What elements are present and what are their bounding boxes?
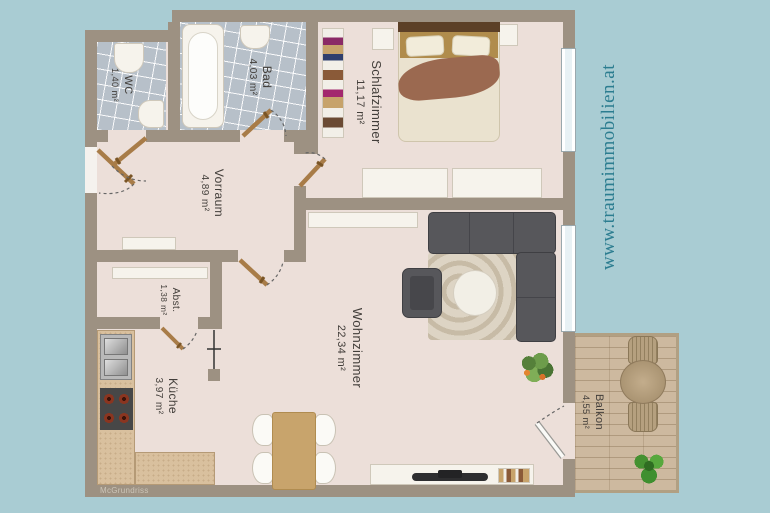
- room-area: 3,97 m²: [152, 378, 165, 415]
- entrance-door: [98, 150, 134, 194]
- room-name: WC: [121, 75, 135, 94]
- room-area: 4,55 m²: [580, 395, 592, 429]
- kitchen-passage-marker: [207, 330, 221, 369]
- room-area: 1,38 m²: [158, 284, 169, 315]
- room-area: 11,17 m²: [352, 79, 366, 124]
- room-label-kueche: Küche 3,97 m²: [144, 351, 188, 441]
- room-area: 1,40 m²: [109, 68, 121, 102]
- room-name: Küche: [165, 378, 181, 414]
- room-label-balkon: Balkon 4,55 m²: [571, 367, 615, 457]
- room-name: Vorraum: [211, 169, 227, 217]
- balcony-door: [537, 406, 564, 457]
- room-area: 4,89 m²: [198, 175, 211, 212]
- room-label-wc: WC 1,40 m²: [100, 40, 144, 130]
- room-name: Schlafzimmer: [367, 60, 384, 144]
- room-label-vorraum: Vorraum 4,89 m²: [190, 148, 234, 238]
- watermark-url: www.traumimmobilien.at: [598, 37, 624, 297]
- room-area: 4,03 m²: [246, 59, 259, 96]
- room-label-bad: Bad 4,03 m²: [238, 32, 282, 122]
- wc-door: [112, 138, 146, 181]
- bedroom-door: [300, 153, 325, 186]
- credit-text: McGrundriss: [100, 486, 149, 495]
- room-name: Wohnzimmer: [348, 308, 365, 388]
- room-name: Abst.: [169, 288, 182, 313]
- room-label-schlafzimmer: Schlafzimmer 11,17 m²: [346, 57, 390, 147]
- room-area: 22,34 m²: [333, 325, 347, 371]
- room-label-abstellraum: Abst. 1,38 m²: [149, 255, 191, 345]
- room-label-wohnzimmer: Wohnzimmer 22,34 m²: [327, 303, 371, 393]
- livingroom-door: [240, 260, 283, 285]
- floor-plan-canvas: WC 1,40 m² Bad 4,03 m² Schlafzimmer 11,1…: [0, 0, 770, 513]
- room-name: Bad: [259, 66, 275, 89]
- room-name: Balkon: [592, 394, 606, 430]
